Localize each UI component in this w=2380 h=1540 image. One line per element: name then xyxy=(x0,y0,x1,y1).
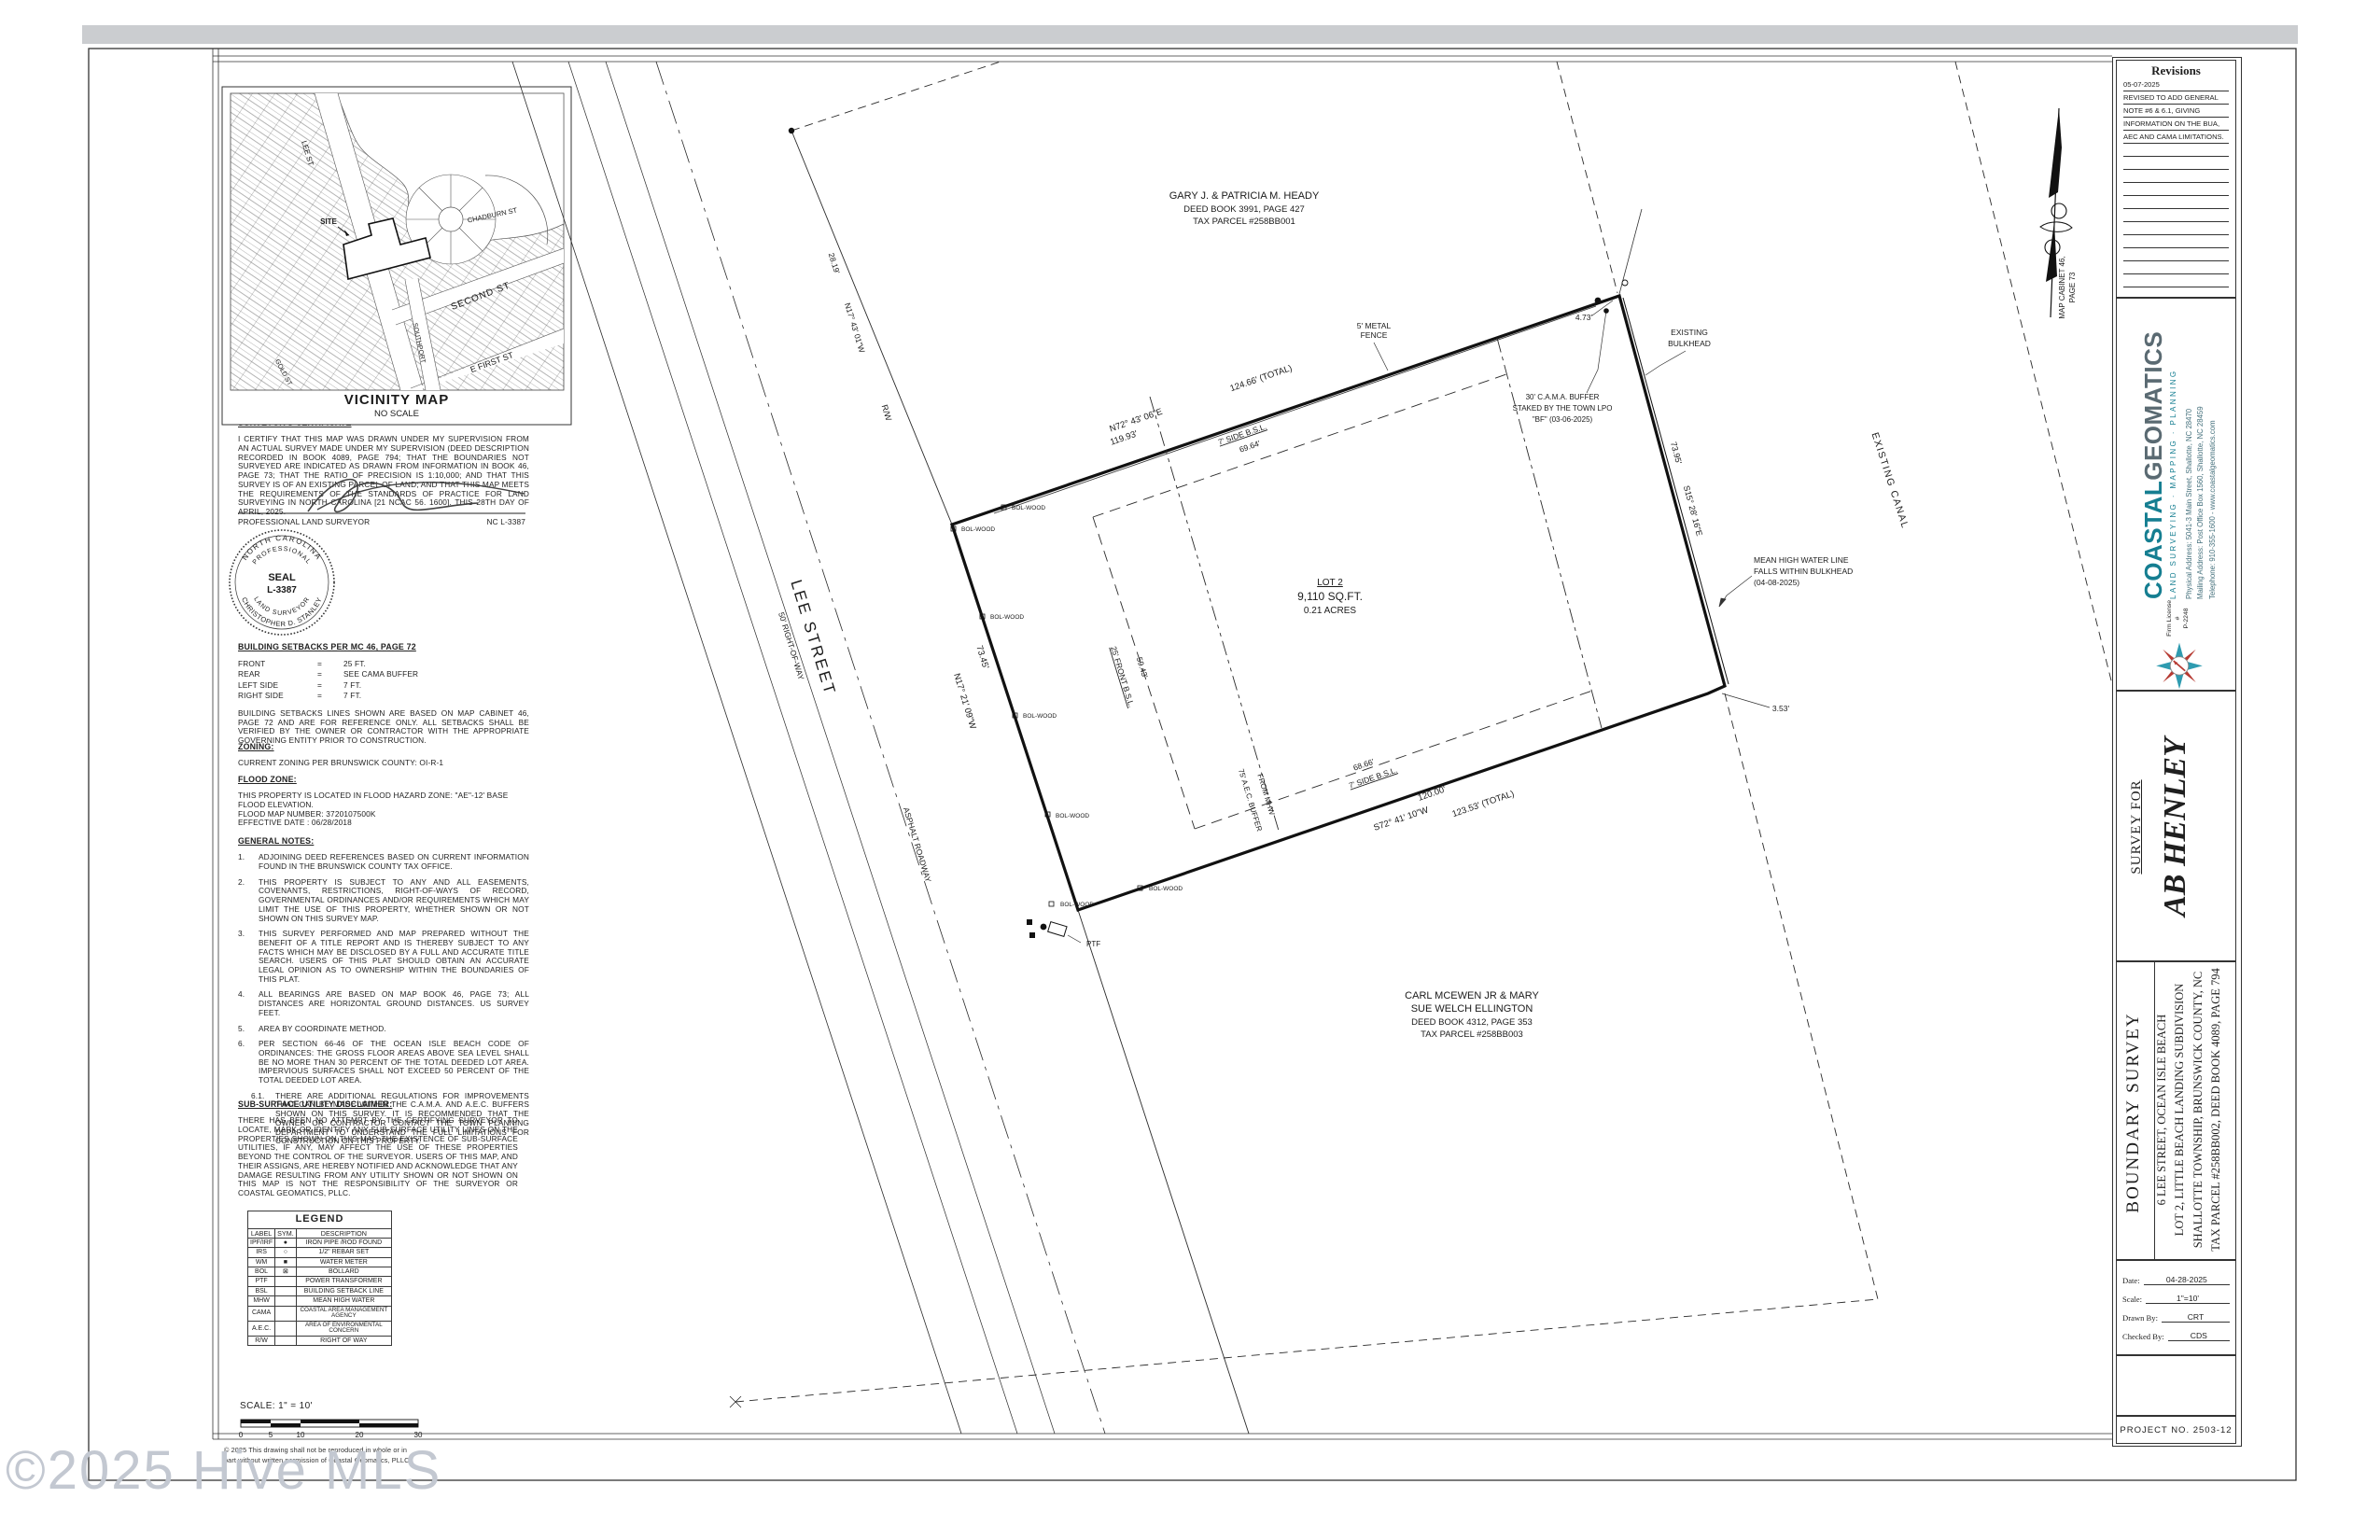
metal-fence-line xyxy=(994,306,1596,513)
adjoiner-south-parcel: TAX PARCEL #258BB003 xyxy=(1421,1029,1523,1040)
aec-buffer-line xyxy=(1150,397,1279,831)
bearing-south-line: S72° 41' 10"W xyxy=(1372,805,1430,833)
lot-boundary xyxy=(952,209,1729,910)
aec-buffer-label2: FROM MHW xyxy=(1255,773,1276,817)
legend-row: IRS○1/2" REBAR SET xyxy=(248,1248,392,1257)
legend-cell: BOLLARD xyxy=(296,1267,391,1277)
legend-col-header: SYM. xyxy=(275,1228,297,1239)
bollard-label: BOL-WOOD xyxy=(1012,505,1045,511)
fence-label2: FENCE xyxy=(1361,330,1388,340)
bulkhead-label2: BULKHEAD xyxy=(1668,339,1711,348)
distance-south-total: 123.53' (TOTAL) xyxy=(1451,789,1516,819)
site-label: SITE xyxy=(320,217,337,226)
surveyor-seal: NORTH CAROLINA PROFESSIONAL SEAL L-3387 … xyxy=(224,525,341,641)
north-arrow-note2: PAGE 73 xyxy=(2068,272,2077,302)
legend-symbol xyxy=(275,1277,297,1286)
scalebar-tick: 0 xyxy=(239,1431,244,1439)
legend-row: WM■WATER METER xyxy=(248,1257,392,1267)
scale-bar xyxy=(241,1420,418,1427)
legend-row: CAMACOASTAL AREA MANAGEMENT AGENCY xyxy=(248,1306,392,1321)
bearing-west-line: N17° 21' 09"W xyxy=(951,672,978,730)
legend-col-header: DESCRIPTION xyxy=(296,1228,391,1239)
legend-cell: RIGHT OF WAY xyxy=(296,1336,391,1345)
mhw-label2: FALLS WITHIN BULKHEAD xyxy=(1754,567,1853,576)
bulkhead-label: EXISTING xyxy=(1671,328,1708,337)
legend-cell: BOL xyxy=(248,1267,275,1277)
bollard-label: BOL-WOOD xyxy=(1060,902,1094,908)
legend-cell: R/W xyxy=(248,1336,275,1345)
lot-area-acres: 0.21 ACRES xyxy=(1304,606,1356,616)
legend-symbol: ⊠ xyxy=(275,1267,297,1277)
legend-row: BSLBUILDING SETBACK LINE xyxy=(248,1286,392,1295)
adjoiner-north-parcel: TAX PARCEL #258BB001 xyxy=(1193,217,1295,227)
legend-symbol: ● xyxy=(275,1239,297,1248)
scalebar-tick: 20 xyxy=(356,1431,364,1439)
mls-watermark: ©2025 Hive MLS xyxy=(6,1439,441,1502)
distance-rw-north: 28.19' xyxy=(827,252,842,275)
rw-label: R/W xyxy=(880,403,894,422)
legend-cell: BSL xyxy=(248,1286,275,1295)
legend-row: IPF/IRF●IRON PIPE /ROD FOUND xyxy=(248,1239,392,1248)
cama-buffer-label2: STAKED BY THE TOWN LPO xyxy=(1513,404,1613,413)
legend-cell: COASTAL AREA MANAGEMENT AGENCY xyxy=(296,1306,391,1321)
legend-col-header: LABEL xyxy=(248,1228,275,1239)
adjoiner-south-name: CARL MCEWEN JR & MARY xyxy=(1405,990,1539,1001)
scalebar-tick: 30 xyxy=(414,1431,423,1439)
surveyor-signature xyxy=(238,480,525,513)
fence-label: 5' METAL xyxy=(1357,321,1392,330)
legend-cell: MHW xyxy=(248,1296,275,1306)
legend-cell: IRS xyxy=(248,1248,275,1257)
vicinity-map xyxy=(222,87,571,425)
survey-document-page: SITELEE STCHADBURN STSECOND STE FIRST ST… xyxy=(0,0,2380,1540)
scalebar-tick: 10 xyxy=(297,1431,305,1439)
legend-cell: PTF xyxy=(248,1277,275,1286)
bsl-side-north-dist: 69.64' xyxy=(1239,439,1262,455)
legend-cell: IPF/IRF xyxy=(248,1239,275,1248)
north-arrow-icon xyxy=(2040,108,2072,317)
bollard-label: BOL-WOOD xyxy=(1056,813,1089,819)
legend-row: BOL⊠BOLLARD xyxy=(248,1267,392,1277)
distance-west-line: 73.45' xyxy=(973,644,990,670)
svg-text:L-3387: L-3387 xyxy=(267,585,297,595)
legend-cell: WATER METER xyxy=(296,1257,391,1267)
street-name-label: LEE STREET xyxy=(787,578,839,698)
mhw-label: MEAN HIGH WATER LINE xyxy=(1754,555,1849,565)
water-meter-symbol xyxy=(1027,919,1032,925)
scale-label: SCALE: 1" = 10' xyxy=(240,1401,313,1411)
legend-columns: LABELSYM.DESCRIPTION xyxy=(248,1228,392,1239)
distance-north-total: 124.66' (TOTAL) xyxy=(1229,363,1294,394)
adjoiner-south-name2: SUE WELCH ELLINGTON xyxy=(1411,1003,1533,1015)
cama-buffer-label3: "BF" (03-06-2025) xyxy=(1533,415,1593,424)
bollard-label: BOL-WOOD xyxy=(961,526,995,533)
distance-east-line: 73.95' xyxy=(1669,441,1684,465)
lot-area-sqft: 9,110 SQ.FT. xyxy=(1297,590,1363,603)
legend-title: LEGEND xyxy=(248,1211,392,1229)
lot-number-label: LOT 2 xyxy=(1317,578,1343,588)
tie-distance-se: 3.53' xyxy=(1772,704,1790,713)
svg-text:PROFESSIONAL: PROFESSIONAL xyxy=(252,546,312,566)
street-lines xyxy=(512,62,1249,1434)
legend-cell: 1/2" REBAR SET xyxy=(296,1248,391,1257)
adjoiner-north-name: GARY J. & PATRICIA M. HEADY xyxy=(1169,190,1320,202)
legend-symbol xyxy=(275,1286,297,1295)
legend-table: LEGEND LABELSYM.DESCRIPTION IPF/IRF●IRON… xyxy=(247,1211,392,1346)
legend-symbol xyxy=(275,1336,297,1345)
bearing-east-line: S15° 28' 16"E xyxy=(1682,484,1704,537)
legend-cell: POWER TRANSFORMER xyxy=(296,1277,391,1286)
bsl-front-dist: 59.43' xyxy=(1135,656,1150,679)
scalebar-tick: 5 xyxy=(269,1431,273,1439)
legend-cell: AREA OF ENVIRONMENTAL CONCERN xyxy=(296,1321,391,1336)
tie-distance-ne: 4.73' xyxy=(1575,313,1593,322)
bollard-label: BOL-WOOD xyxy=(990,614,1024,621)
ptf-label: PTF xyxy=(1086,940,1100,948)
adjoiner-boundaries xyxy=(730,62,2112,1407)
bsl-front-label: 25' FRONT B.S.L. xyxy=(1109,645,1136,708)
legend-symbol xyxy=(275,1306,297,1321)
cama-buffer-label: 30' C.A.M.A. BUFFER xyxy=(1526,393,1600,401)
vicinity-title: VICINITY MAP xyxy=(344,392,450,408)
north-arrow-note: MAP CABINET 46, xyxy=(2058,256,2066,318)
legend-cell: CAMA xyxy=(248,1306,275,1321)
adjoiner-north-deed: DEED BOOK 3991, PAGE 427 xyxy=(1183,204,1305,215)
legend-row: MHWMEAN HIGH WATER xyxy=(248,1296,392,1306)
power-transformer-symbol xyxy=(1048,922,1067,937)
legend-symbol xyxy=(275,1296,297,1306)
legend-row: PTFPOWER TRANSFORMER xyxy=(248,1277,392,1286)
mhw-label3: (04-08-2025) xyxy=(1754,578,1799,587)
legend-symbol: ■ xyxy=(275,1257,297,1267)
adjoiner-south-deed: DEED BOOK 4312, PAGE 353 xyxy=(1411,1017,1533,1028)
legend-row: A.E.C.AREA OF ENVIRONMENTAL CONCERN xyxy=(248,1321,392,1336)
legend-cell: WM xyxy=(248,1257,275,1267)
water-meter-symbol xyxy=(1029,932,1035,938)
bearing-north-line: N72° 43' 06"E xyxy=(1108,407,1164,435)
svg-text:SEAL: SEAL xyxy=(268,572,296,583)
bearing-rw-north: N17° 43' 01"W xyxy=(843,301,867,354)
asphalt-roadway-label: ASPHALT ROADWAY xyxy=(902,806,933,884)
legend-cell: BUILDING SETBACK LINE xyxy=(296,1286,391,1295)
bollard-label: BOL-WOOD xyxy=(1023,713,1057,720)
legend-cell: MEAN HIGH WATER xyxy=(296,1296,391,1306)
canal-label: EXISTING CANAL xyxy=(1869,431,1911,530)
legend-symbol: ○ xyxy=(275,1248,297,1257)
bollard-label: BOL-WOOD xyxy=(1149,886,1183,892)
legend-symbol xyxy=(275,1321,297,1336)
legend-cell: IRON PIPE /ROD FOUND xyxy=(296,1239,391,1248)
leader-lines xyxy=(1068,301,1770,943)
legend-row: R/WRIGHT OF WAY xyxy=(248,1336,392,1345)
legend-cell: A.E.C. xyxy=(248,1321,275,1336)
vicinity-subtitle: NO SCALE xyxy=(374,409,419,419)
